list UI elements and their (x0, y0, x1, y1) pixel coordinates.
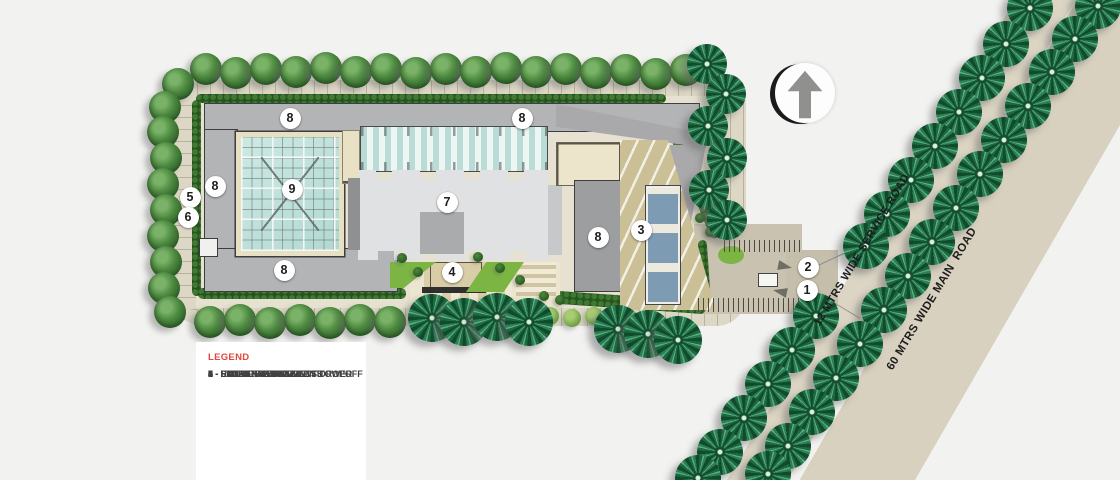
site-area (0, 0, 1120, 480)
plan-marker-retail-top-left: 8 (280, 108, 301, 129)
tower-core (420, 212, 464, 254)
plan-marker-dropoff: 4 (442, 262, 463, 283)
basement-ramp-structure (199, 238, 218, 257)
plan-marker-retail-top-right: 8 (512, 108, 533, 129)
plan-marker-entry: 1 (797, 280, 818, 301)
north-indicator (775, 63, 835, 123)
court-fence-bottom (698, 298, 802, 312)
pedestrian-crossing (516, 262, 556, 296)
plan-marker-basement-entry: 5 (180, 187, 201, 208)
plan-marker-retail-right: 8 (588, 227, 609, 248)
glazed-atrium-roof (360, 126, 548, 172)
stair-strip (342, 130, 360, 184)
site-plan-canvas: 12 MTRS WIDE SERVICE ROAD 60 MTRS WIDE M… (0, 0, 1120, 480)
plan-marker-retail-bottom: 8 (274, 260, 295, 281)
plan-marker-plaza: 9 (282, 179, 303, 200)
tower-left-slab (348, 178, 360, 250)
plan-marker-tower: 7 (437, 192, 458, 213)
hedge-top (196, 94, 666, 103)
legend-title: LEGEND (208, 352, 358, 363)
legend-panel: LEGEND 1 - ENTRY 2 - EXIT 3 - ENTRANCE P… (196, 342, 366, 480)
plan-marker-entrance-plaza: 3 (631, 220, 652, 241)
plan-marker-exit: 2 (798, 257, 819, 278)
entrance-plaza-glass-canopies (646, 186, 680, 304)
plan-marker-basement-exit: 6 (178, 207, 199, 228)
plan-marker-retail-left: 8 (205, 176, 226, 197)
tower-right-slab (548, 185, 562, 255)
court-fence-top (724, 240, 800, 252)
legend-item-plaza: 9 - PLAZA (208, 368, 250, 380)
